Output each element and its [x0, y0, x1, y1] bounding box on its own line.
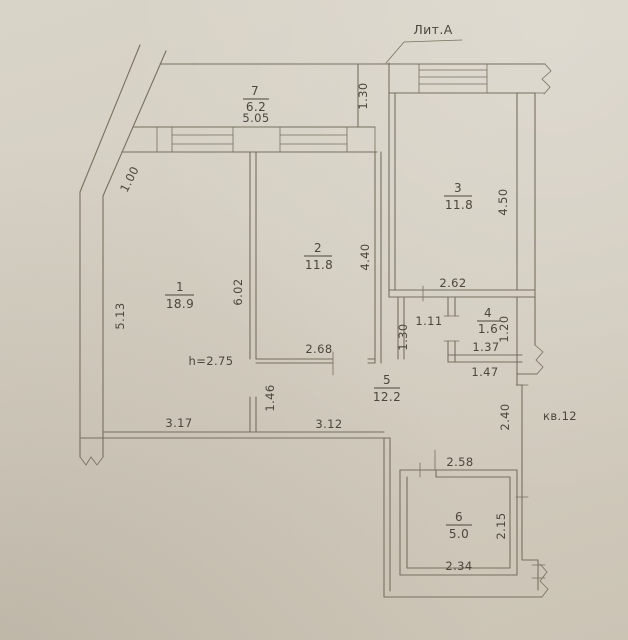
room4-left-wall: [448, 297, 455, 362]
leader-line: [386, 40, 462, 63]
room4-bottom-wall: [448, 355, 522, 362]
room-3-area: 11.8: [445, 198, 473, 212]
dim-diagonal-wall: 1.00: [117, 164, 142, 195]
room2-bottom-wall: [256, 359, 375, 363]
room2-right-wall: [375, 152, 381, 363]
window-jambs: [419, 64, 487, 93]
bottom-wall-main: [80, 432, 390, 438]
right-wall-lower: [522, 385, 538, 590]
extension-left-wall: [384, 438, 390, 597]
door-jamb: [444, 316, 459, 341]
room3-left-wall: [389, 63, 395, 297]
room-7-number: 7: [251, 84, 259, 98]
dim-balcony-depth: 1.30: [356, 82, 370, 109]
dim-wc-width: 1.37: [472, 340, 499, 354]
dim-room3-height: 4.50: [496, 188, 510, 215]
dimension-labels: 5.05 1.30 1.00 4.50 4.40 6.02 5.13 2.62 …: [113, 82, 577, 573]
room-1-number: 1: [176, 280, 184, 294]
room-6-area: 5.0: [449, 527, 469, 541]
dim-room1-divider: 6.02: [231, 278, 245, 305]
building-label: Лит.А: [413, 22, 452, 37]
dim-room1-left: 5.13: [113, 302, 127, 329]
entry-step-wall: [517, 297, 537, 385]
dim-entry-height: 2.40: [498, 403, 512, 430]
room-2-area: 11.8: [305, 258, 333, 272]
dim-wc-height: 1.20: [497, 315, 511, 342]
dim-corridor-width: 1.11: [415, 314, 442, 328]
dim-room6-top: 2.58: [446, 455, 473, 469]
ceiling-height-note: h=2.75: [189, 354, 234, 368]
wall-break-icon: [80, 457, 103, 465]
wall-break-icon: [540, 564, 548, 597]
window-glazing-icon: [172, 135, 347, 144]
dim-wc-bottom: 1.47: [471, 365, 498, 379]
dim-hall-height: 1.46: [263, 384, 277, 411]
room-4-area: 1.6: [478, 322, 498, 336]
dim-hall-bottom: 3.12: [315, 417, 342, 431]
room-2-number: 2: [314, 241, 322, 255]
dim-room2-bottom: 2.68: [305, 342, 332, 356]
window-glazing-icon: [419, 70, 487, 84]
dim-room2-height: 4.40: [358, 243, 372, 270]
room-1-area: 18.9: [166, 297, 194, 311]
dim-room6-height: 2.15: [494, 512, 508, 539]
floor-plan-drawing: Лит.А 7 6.2 3 11.8 2 11.8 1 18.9 4 1.6 5…: [0, 0, 628, 640]
room-3-number: 3: [454, 181, 462, 195]
room-6-number: 6: [455, 510, 463, 524]
room-5-area: 12.2: [373, 390, 401, 404]
wall-break-icon: [535, 345, 543, 374]
wall-break-icon: [535, 64, 551, 94]
room-5-number: 5: [383, 373, 391, 387]
dim-room6-bottom: 2.34: [445, 559, 472, 573]
apartment-label: кв.12: [543, 409, 577, 423]
dim-room1-bottom: 3.17: [165, 416, 192, 430]
dim-room3-bottom: 2.62: [439, 276, 466, 290]
tick: [420, 450, 435, 477]
room3-bottom-wall: [389, 290, 535, 297]
room-4-number: 4: [484, 306, 492, 320]
room1-room2-wall: [250, 152, 256, 432]
diagonal-wall-outer: [80, 45, 140, 457]
title-block: Лит.А: [386, 22, 462, 63]
window-jambs: [157, 127, 375, 152]
dim-corridor-height: 1.30: [396, 323, 410, 350]
dim-balcony-width: 5.05: [242, 111, 269, 125]
